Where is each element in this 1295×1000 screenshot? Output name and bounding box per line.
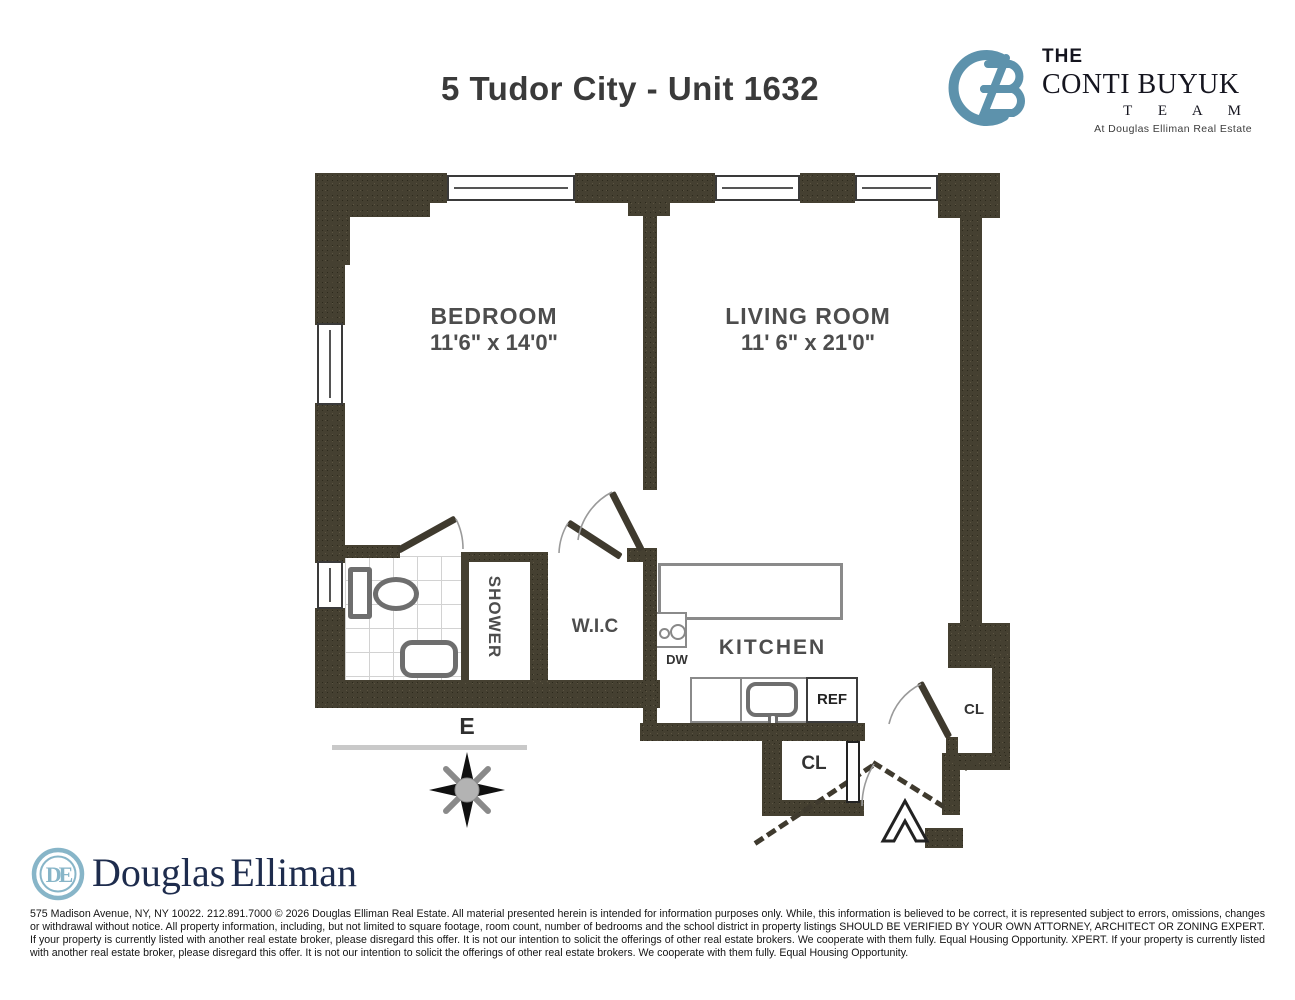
window-bedroom-side [317, 323, 343, 405]
wall [315, 173, 350, 265]
entry-arrow-icon [883, 801, 927, 841]
wic-label: W.I.C [550, 616, 640, 638]
door-arc [456, 519, 463, 549]
bedroom-name: BEDROOM [345, 303, 643, 330]
door-entry-swing [872, 760, 946, 809]
wall-shower-wic-divider [530, 552, 548, 683]
closet-sliding-door [846, 741, 860, 803]
wall [315, 265, 345, 325]
wall [640, 723, 865, 741]
bedroom-label: BEDROOM 11'6" x 14'0" [345, 303, 643, 356]
wall [938, 173, 1000, 218]
window-living-1 [715, 175, 800, 201]
wall [345, 545, 400, 558]
door-arc [559, 523, 568, 553]
compass-rose-icon [422, 745, 512, 835]
wall [960, 218, 982, 623]
brand-first: Douglas [92, 850, 225, 895]
bedroom-dimensions: 11'6" x 14'0" [345, 330, 643, 356]
dishwasher-label: DW [657, 652, 697, 667]
svg-text:DE: DE [46, 862, 73, 887]
wall [643, 548, 657, 723]
counter-divider [740, 677, 742, 723]
kitchen-sink [746, 682, 798, 717]
douglas-elliman-wordmark: DouglasElliman [92, 849, 357, 896]
living-room-label: LIVING ROOM 11' 6" x 21'0" [658, 303, 958, 356]
door-vestibule [566, 520, 623, 560]
kitchen-label: KITCHEN [700, 636, 845, 660]
wall [462, 552, 535, 562]
bathtub [400, 640, 458, 678]
brand-second: Elliman [230, 850, 357, 895]
window-living-2 [855, 175, 938, 201]
shower-label: SHOWER [479, 567, 509, 667]
conti-buyuk-monogram-icon [938, 42, 1038, 134]
douglas-elliman-monogram-icon: DE [30, 846, 86, 902]
door-bathroom [396, 515, 457, 553]
wall [315, 680, 660, 708]
compass-east-label: E [432, 713, 502, 740]
window-bathroom [317, 561, 343, 609]
wall [430, 173, 447, 203]
wall-bedroom-living-divider [643, 200, 657, 490]
legal-disclaimer: 575 Madison Avenue, NY, NY 10022. 212.89… [30, 908, 1265, 960]
living-room-dimensions: 11' 6" x 21'0" [658, 330, 958, 356]
door-arc [889, 684, 921, 724]
refrigerator-label: REF [806, 691, 858, 708]
wall [800, 173, 855, 203]
door-bedroom [609, 491, 645, 552]
wall-shower-left [461, 552, 469, 683]
closet-bottom-label: CL [780, 753, 848, 775]
wall [575, 173, 715, 203]
wall [925, 828, 963, 848]
door-closet-right [917, 681, 952, 739]
toilet [373, 577, 419, 611]
living-room-name: LIVING ROOM [658, 303, 958, 330]
wall [315, 403, 345, 563]
dishwasher [653, 612, 687, 648]
window-bedroom [447, 175, 575, 201]
bathroom-sink [348, 567, 372, 619]
closet-right-label: CL [954, 701, 994, 718]
